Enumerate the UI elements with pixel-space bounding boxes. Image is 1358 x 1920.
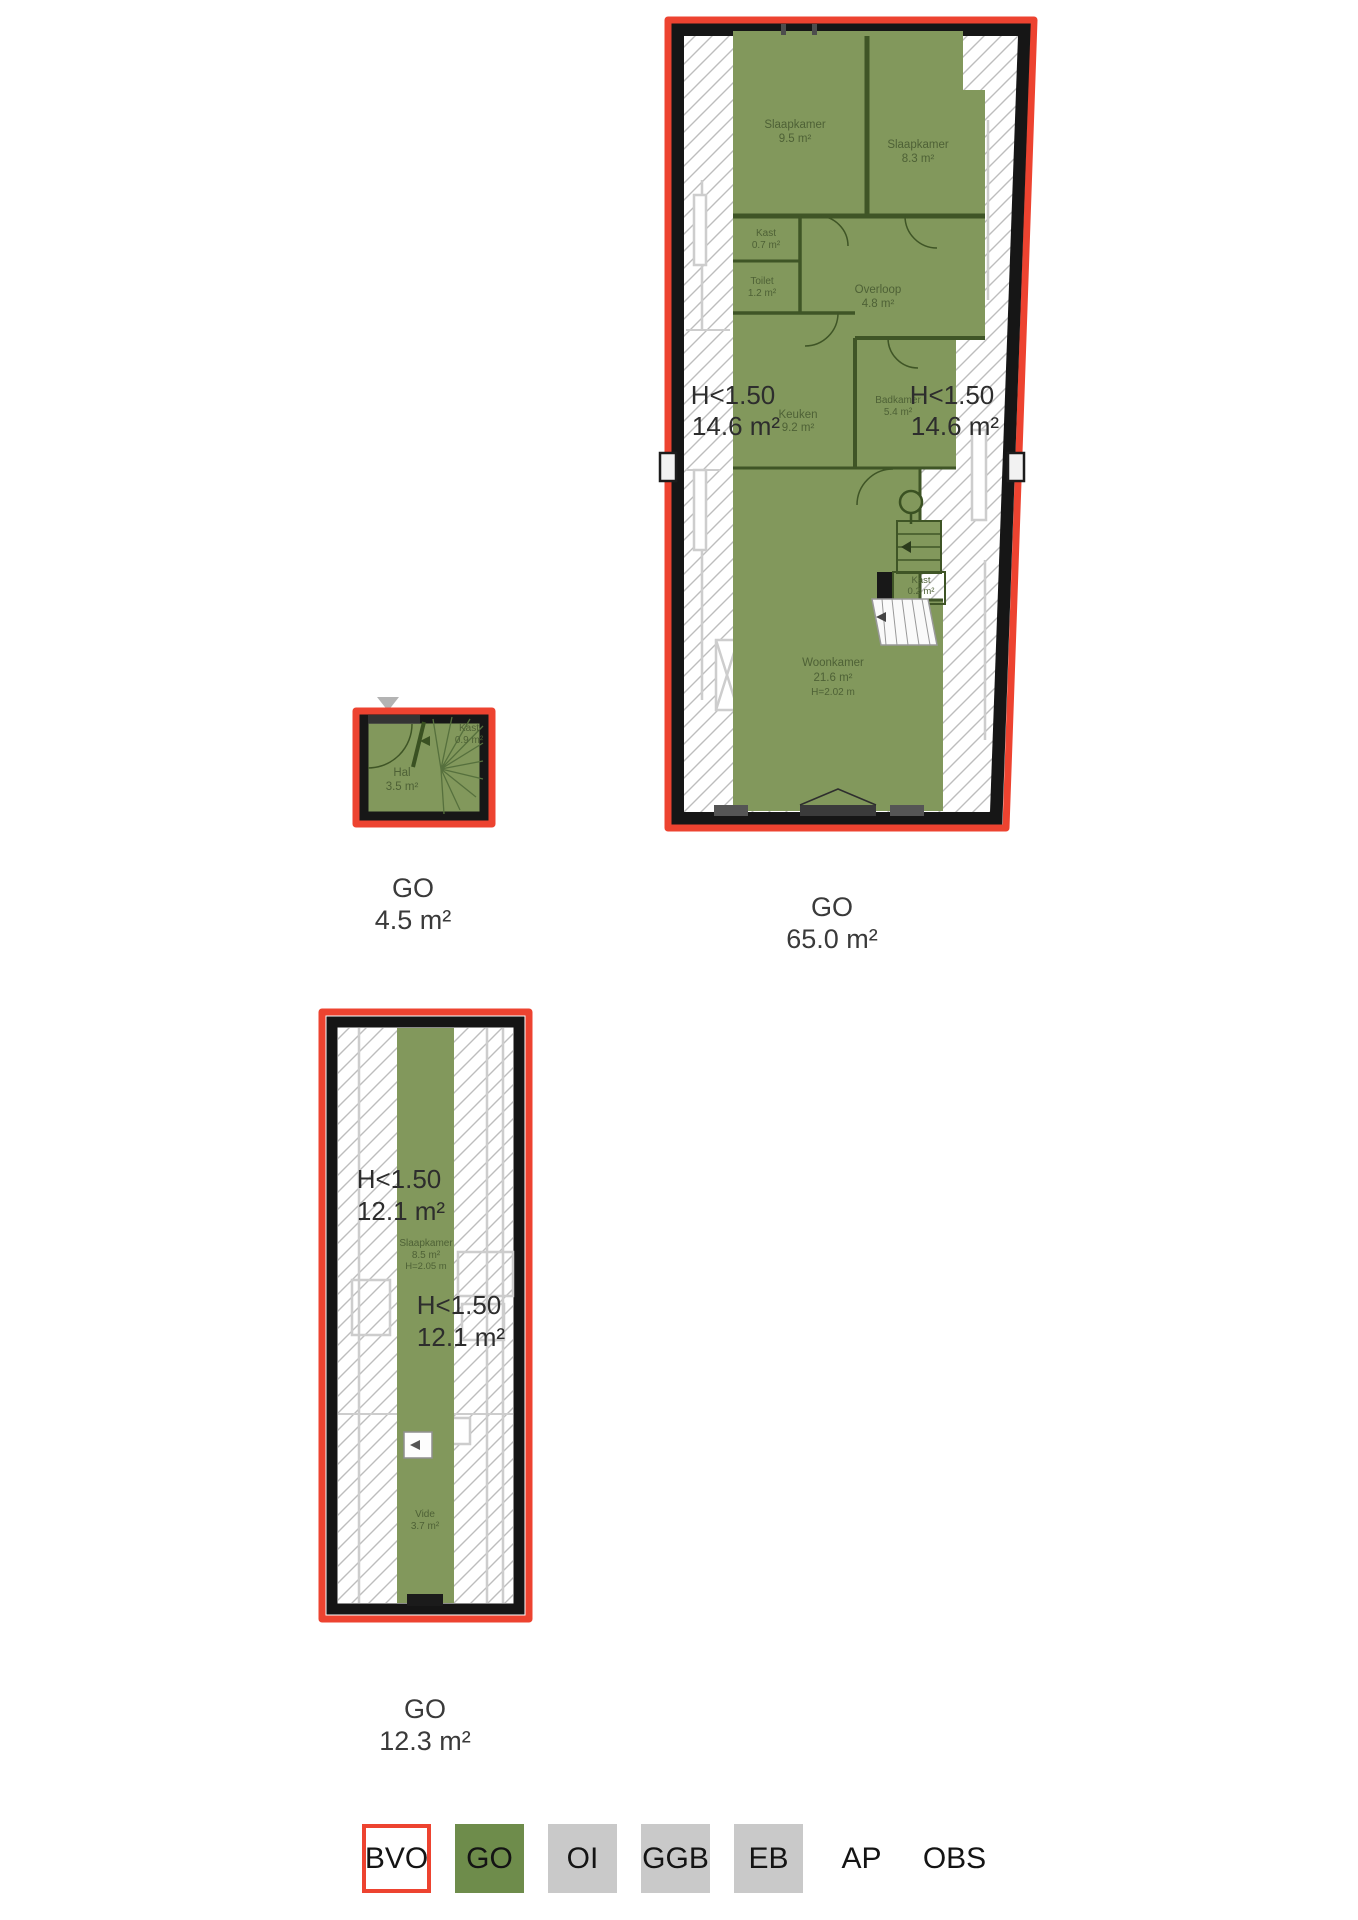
room-area: 0.7 m² (752, 240, 781, 251)
low-height-area: 14.6 m² (911, 411, 999, 441)
go-caption-attic: GO 12.3 m² (315, 1693, 535, 1757)
low-height-label: H<1.50 (357, 1164, 442, 1194)
legend-label: OBS (923, 1842, 986, 1876)
room-area: 5.4 m² (884, 407, 913, 418)
staircase-lower (872, 599, 937, 645)
staircase-upper (897, 521, 941, 573)
room-label: Kast (459, 723, 479, 734)
legend-item-oi: OI (548, 1824, 617, 1893)
go-caption-area: 65.0 m² (722, 923, 942, 955)
room-label: Vide (415, 1509, 435, 1520)
low-height-area: 14.6 m² (692, 411, 780, 441)
room-height: H=2.02 m (811, 687, 855, 698)
room-label: Overloop (855, 284, 902, 296)
legend-item-ap: AP (827, 1824, 896, 1893)
room-area: 0.9 m² (455, 735, 484, 746)
right-bay (1008, 453, 1024, 481)
dormer-box (404, 1432, 432, 1458)
floorplan-first-floor: Slaapkamer 9.5 m² Slaapkamer 8.3 m² Kast… (652, 8, 1056, 840)
legend-label: GO (466, 1842, 513, 1876)
room-area: 8.5 m² (412, 1250, 441, 1261)
go-caption-area: 12.3 m² (315, 1725, 535, 1757)
low-height-label: H<1.50 (910, 380, 995, 410)
low-height-label: H<1.50 (691, 380, 776, 410)
room-label: Kast (911, 575, 930, 586)
low-height-area: 12.1 m² (417, 1322, 505, 1352)
go-caption-first-floor: GO 65.0 m² (722, 891, 942, 955)
wall-segment (407, 1594, 443, 1606)
legend-label: EB (748, 1842, 788, 1876)
legend: BVO GO OI GGB EB AP OBS (362, 1824, 989, 1893)
legend-item-eb: EB (734, 1824, 803, 1893)
legend-label: OI (567, 1842, 599, 1876)
room-label: Keuken (778, 409, 817, 421)
room-area: 3.5 m² (386, 781, 419, 793)
room-label: Kast (756, 228, 776, 239)
legend-label: GGB (642, 1842, 709, 1876)
go-caption-area: 4.5 m² (303, 904, 523, 936)
room-area: 0.2 m² (908, 586, 935, 597)
legend-item-ggb: GGB (641, 1824, 710, 1893)
room-label: Slaapkamer (399, 1238, 453, 1249)
legend-item-obs: OBS (920, 1824, 989, 1893)
room-area: 4.8 m² (862, 298, 895, 310)
room-label: Toilet (750, 276, 774, 287)
go-caption-label: GO (315, 1693, 535, 1725)
room-label: Slaapkamer (764, 119, 826, 131)
room-height: H=2.05 m (405, 1261, 447, 1272)
room-label: Hal (393, 767, 410, 779)
floorplan-attic: H<1.50 12.1 m² Slaapkamer 8.5 m² H=2.05 … (310, 1000, 538, 1628)
room-label: Woonkamer (802, 657, 864, 669)
go-caption-ground-floor: GO 4.5 m² (303, 872, 523, 936)
room-area: 8.3 m² (902, 153, 935, 165)
legend-item-bvo: BVO (362, 1824, 431, 1893)
room-area: 21.6 m² (814, 672, 853, 684)
room-area: 1.2 m² (748, 288, 777, 299)
low-height-area: 12.1 m² (357, 1196, 445, 1226)
go-caption-label: GO (722, 891, 942, 923)
low-height-label: H<1.50 (417, 1290, 502, 1320)
go-caption-label: GO (303, 872, 523, 904)
room-label: Slaapkamer (887, 139, 949, 151)
left-bay (660, 453, 676, 481)
room-area: 3.7 m² (411, 1521, 440, 1532)
room-area: 9.2 m² (782, 422, 815, 434)
legend-item-go: GO (455, 1824, 524, 1893)
door-opening (368, 715, 420, 724)
legend-label: BVO (365, 1842, 428, 1876)
floorplan-ground-floor: Kast 0.9 m² Hal 3.5 m² (342, 688, 502, 832)
floorplan-report-page: Slaapkamer 9.5 m² Slaapkamer 8.3 m² Kast… (0, 0, 1358, 1920)
room-area: 9.5 m² (779, 133, 812, 145)
legend-label: AP (841, 1842, 881, 1876)
